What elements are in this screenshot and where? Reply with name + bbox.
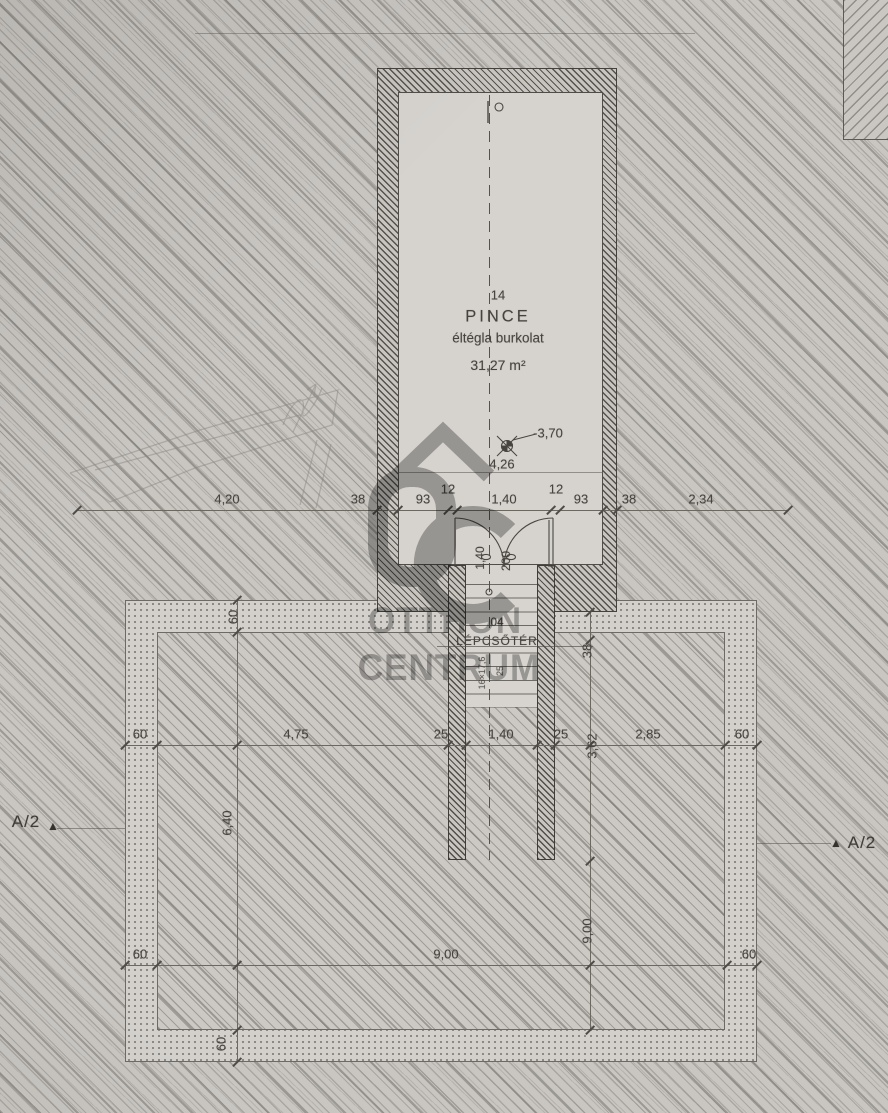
dim-label: 2,85 bbox=[635, 727, 660, 742]
dim-label: 4,20 bbox=[214, 492, 239, 507]
blueprint-scan: 14 PINCE éltégla burkolat 31,27 m² -3,70… bbox=[0, 0, 888, 1113]
dim-label: 12 bbox=[441, 482, 455, 497]
dim-label: 25 bbox=[434, 727, 448, 742]
dim-label: 38 bbox=[351, 492, 365, 507]
dim-line-vertical bbox=[590, 612, 591, 1030]
dim-label-vertical: 9,00 bbox=[580, 918, 595, 943]
dim-label: 4,75 bbox=[283, 727, 308, 742]
dim-label: 93 bbox=[416, 492, 430, 507]
dim-label: 93 bbox=[574, 492, 588, 507]
dim-label: 60 bbox=[742, 947, 756, 962]
dim-label: 1,40 bbox=[491, 492, 516, 507]
dim-label: 12 bbox=[549, 482, 563, 497]
dim-label: 25 bbox=[554, 727, 568, 742]
dimension-chains: 4,203893121,401293382,34604,75251,40252,… bbox=[0, 0, 888, 1113]
dim-label-vertical: 6,40 bbox=[220, 810, 235, 835]
dim-label: 60 bbox=[133, 727, 147, 742]
dim-line-vertical bbox=[237, 600, 238, 1062]
dim-label-vertical: 38 bbox=[580, 644, 595, 658]
dim-line bbox=[125, 965, 757, 966]
dim-label-vertical: 60 bbox=[226, 610, 241, 624]
dim-label: 38 bbox=[622, 492, 636, 507]
dim-label-vertical: 60 bbox=[214, 1037, 229, 1051]
dim-label: 9,00 bbox=[433, 947, 458, 962]
dim-line bbox=[125, 745, 757, 746]
dim-label: 1,40 bbox=[488, 727, 513, 742]
dim-label-vertical: 3,62 bbox=[585, 733, 600, 758]
dim-label: 60 bbox=[133, 947, 147, 962]
dim-line bbox=[77, 510, 788, 511]
dim-label: 60 bbox=[735, 727, 749, 742]
dim-label: 2,34 bbox=[688, 492, 713, 507]
